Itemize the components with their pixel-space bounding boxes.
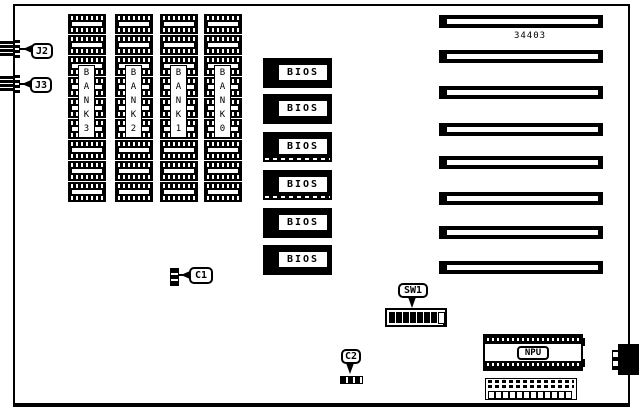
chip-pins-top <box>118 16 150 20</box>
chip-notch <box>119 190 149 194</box>
chip-pins-top <box>163 16 195 20</box>
memory-chip <box>68 35 106 55</box>
switch-segment <box>431 312 437 323</box>
npu-tab-top <box>581 338 585 346</box>
chip-notch <box>119 169 149 173</box>
header-pin <box>558 391 565 399</box>
chip-notch <box>72 148 102 152</box>
header-pin <box>530 391 537 399</box>
chip-notch <box>119 148 149 152</box>
sw1-callout-arrow-icon <box>408 297 416 308</box>
expansion-slot <box>439 123 603 136</box>
memory-chip <box>204 182 242 202</box>
switch-segment <box>403 312 409 323</box>
bank-label-char: B <box>84 69 89 78</box>
c1-component <box>170 268 179 286</box>
bank-label-char: K <box>176 111 181 120</box>
chip-pins-bottom <box>71 49 103 53</box>
chip-pins-bottom <box>118 49 150 53</box>
keyboard-connector <box>618 369 639 375</box>
slot-opening <box>447 196 598 201</box>
header-pin <box>537 391 544 399</box>
memory-chip <box>115 35 153 55</box>
chip-pins-bottom <box>207 28 239 32</box>
slot-opening <box>447 90 598 95</box>
chip-pins-bottom <box>207 196 239 200</box>
chip-notch <box>208 148 238 152</box>
chip-pins-top <box>207 16 239 20</box>
expansion-slot <box>439 156 603 169</box>
chip-pins-bottom <box>163 49 195 53</box>
j3-label: J3 <box>30 77 52 93</box>
header-pin <box>523 391 530 399</box>
expansion-slot <box>439 86 603 99</box>
bank-label-char: B <box>131 69 136 78</box>
expansion-slot <box>439 261 603 274</box>
npu-pins-bottom <box>485 361 581 369</box>
npu-label: NPU <box>517 346 549 360</box>
memory-chip <box>204 14 242 34</box>
npu-tab-bottom <box>581 359 585 367</box>
bank-label: BANK2 <box>125 65 142 138</box>
bios-chip: BIOS <box>263 208 332 238</box>
memory-chip <box>160 161 198 181</box>
slot-opening <box>447 160 598 165</box>
memory-chip <box>160 182 198 202</box>
chip-pins-top <box>71 163 103 167</box>
switch-segment <box>389 312 395 323</box>
bank-label-char: N <box>131 97 136 106</box>
switch-segment <box>410 312 416 323</box>
bank-label-char: 3 <box>84 125 89 134</box>
slot-opening <box>447 127 598 132</box>
power-header <box>485 378 577 400</box>
bank-label-char: K <box>84 111 89 120</box>
chip-pins-bottom <box>207 154 239 158</box>
chip-pins-top <box>71 184 103 188</box>
npu-chip: NPU <box>483 334 583 371</box>
header-pin <box>502 391 509 399</box>
chip-pins-bottom <box>163 196 195 200</box>
header-dash-row <box>488 385 574 388</box>
switch-segment <box>417 312 423 323</box>
bank-label: BANK1 <box>170 65 187 138</box>
bank-label-char: B <box>176 69 181 78</box>
expansion-slot <box>439 192 603 205</box>
chip-pins-bottom <box>163 154 195 158</box>
chip-pins-top <box>207 58 239 62</box>
chip-pins-top <box>163 184 195 188</box>
keyboard-connector-pin <box>613 352 618 357</box>
board-number: 34403 <box>495 31 565 41</box>
chip-notch <box>208 169 238 173</box>
j3-edge-connector <box>0 76 13 92</box>
chip-pins-top <box>207 37 239 41</box>
chip-pins-bottom <box>71 154 103 158</box>
bank-label-char: 1 <box>176 125 181 134</box>
header-pin <box>544 391 551 399</box>
bios-chip: BIOS <box>263 245 332 275</box>
chip-pins-bottom <box>71 196 103 200</box>
chip-pins-bottom <box>71 175 103 179</box>
bios-chip-label: BIOS <box>279 215 327 230</box>
chip-notch <box>119 43 149 47</box>
c2-callout-arrow-icon <box>346 363 354 374</box>
chip-pins-top <box>118 37 150 41</box>
chip-pins-bottom <box>118 175 150 179</box>
chip-notch <box>164 148 194 152</box>
bank-label-char: 2 <box>131 125 136 134</box>
memory-chip <box>160 35 198 55</box>
bios-chip: BIOS <box>263 58 332 88</box>
chip-pins-top <box>71 142 103 146</box>
chip-notch <box>119 22 149 26</box>
socket-dash-line <box>265 158 330 160</box>
bank-label-char: N <box>220 97 225 106</box>
chip-pins-top <box>207 163 239 167</box>
dip-switch-dot <box>443 323 447 327</box>
chip-notch <box>72 190 102 194</box>
chip-notch <box>208 190 238 194</box>
memory-chip <box>160 140 198 160</box>
memory-chip <box>68 14 106 34</box>
slot-opening <box>447 230 598 235</box>
memory-chip <box>68 161 106 181</box>
chip-notch <box>164 190 194 194</box>
chip-pins-bottom <box>118 28 150 32</box>
memory-chip <box>68 182 106 202</box>
bios-chip-label: BIOS <box>279 177 327 192</box>
chip-pins-bottom <box>207 49 239 53</box>
chip-pins-top <box>71 16 103 20</box>
bios-chip-label: BIOS <box>279 139 327 154</box>
memory-chip <box>160 14 198 34</box>
chip-notch <box>164 169 194 173</box>
bios-chip: BIOS <box>263 170 332 200</box>
memory-chip <box>204 35 242 55</box>
keyboard-connector-pin <box>613 361 618 366</box>
chip-notch <box>208 43 238 47</box>
expansion-slot <box>439 226 603 239</box>
slot-opening <box>447 265 598 270</box>
bios-chip: BIOS <box>263 94 332 124</box>
bios-chip: BIOS <box>263 132 332 162</box>
bios-chip-label: BIOS <box>279 65 327 80</box>
chip-pins-top <box>118 184 150 188</box>
bank-label-char: A <box>176 83 181 92</box>
header-pin <box>509 391 516 399</box>
c2-label: C2 <box>341 349 361 364</box>
header-pin <box>488 391 495 399</box>
npu-pins-top <box>485 336 581 344</box>
memory-chip <box>115 140 153 160</box>
bank-label-char: 0 <box>220 125 225 134</box>
chip-pins-top <box>207 184 239 188</box>
slot-opening <box>447 19 598 24</box>
bank-label-char: N <box>176 97 181 106</box>
chip-pins-top <box>207 142 239 146</box>
bank-label-char: A <box>84 83 89 92</box>
npu-pin-dots <box>487 363 579 366</box>
bank-label-char: B <box>220 69 225 78</box>
chip-notch <box>208 22 238 26</box>
chip-pins-top <box>163 37 195 41</box>
chip-pins-top <box>163 163 195 167</box>
j2-label: J2 <box>31 43 53 59</box>
chip-notch <box>72 43 102 47</box>
header-pin <box>495 391 502 399</box>
memory-bank-column: BANK1 <box>160 14 198 204</box>
memory-chip <box>68 140 106 160</box>
switch-segment <box>438 312 445 324</box>
chip-pins-bottom <box>163 28 195 32</box>
chip-pins-bottom <box>118 154 150 158</box>
dip-switch <box>385 308 447 327</box>
chip-pins-bottom <box>163 175 195 179</box>
chip-pins-top <box>118 163 150 167</box>
bank-label: BANK0 <box>214 65 231 138</box>
header-pin <box>565 391 572 399</box>
bank-label-char: A <box>220 83 225 92</box>
memory-bank-column: BANK2 <box>115 14 153 204</box>
memory-chip <box>204 140 242 160</box>
bank-label-char: K <box>220 111 225 120</box>
chip-pins-top <box>71 37 103 41</box>
switch-segment <box>424 312 430 323</box>
chip-pins-bottom <box>207 175 239 179</box>
chip-pins-top <box>118 142 150 146</box>
sw1-label: SW1 <box>398 283 428 298</box>
chip-pins-top <box>71 58 103 62</box>
expansion-slot <box>439 50 603 63</box>
header-dash-row <box>488 380 574 383</box>
expansion-slot <box>439 15 603 28</box>
bank-label-char: A <box>131 83 136 92</box>
chip-pins-top <box>163 58 195 62</box>
memory-chip <box>115 182 153 202</box>
bios-chip-label: BIOS <box>279 252 327 267</box>
npu-pin-dots <box>487 338 579 341</box>
bank-label-char: K <box>131 111 136 120</box>
chip-pins-bottom <box>71 28 103 32</box>
chip-notch <box>72 169 102 173</box>
header-pin <box>551 391 558 399</box>
motherboard-diagram: J2 J3 BANK3BANK2BANK1BANK0 BIOSBIOSBIOSB… <box>0 0 639 416</box>
chip-notch <box>72 22 102 26</box>
slot-opening <box>447 54 598 59</box>
socket-dash-line <box>265 196 330 198</box>
chip-pins-bottom <box>118 196 150 200</box>
chip-pins-top <box>163 142 195 146</box>
c1-label: C1 <box>189 267 213 284</box>
chip-notch <box>164 43 194 47</box>
memory-bank-column: BANK0 <box>204 14 242 204</box>
bios-chip-label: BIOS <box>279 101 327 116</box>
j2-edge-connector <box>0 41 13 57</box>
switch-segment <box>396 312 402 323</box>
bank-label: BANK3 <box>78 65 95 138</box>
chip-pins-top <box>118 58 150 62</box>
bank-label-char: N <box>84 97 89 106</box>
memory-chip <box>204 161 242 181</box>
memory-bank-column: BANK3 <box>68 14 106 204</box>
header-pin <box>516 391 523 399</box>
c2-component <box>340 376 363 384</box>
memory-chip <box>115 14 153 34</box>
memory-chip <box>115 161 153 181</box>
chip-notch <box>164 22 194 26</box>
